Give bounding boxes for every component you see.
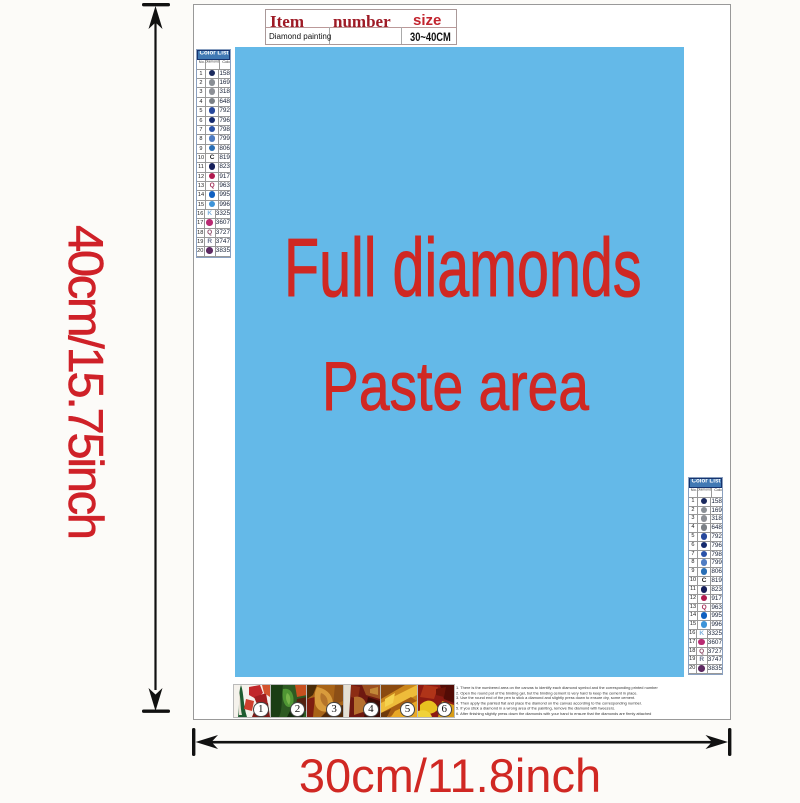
svg-text:40cm/15.75inch: 40cm/15.75inch: [58, 225, 112, 540]
